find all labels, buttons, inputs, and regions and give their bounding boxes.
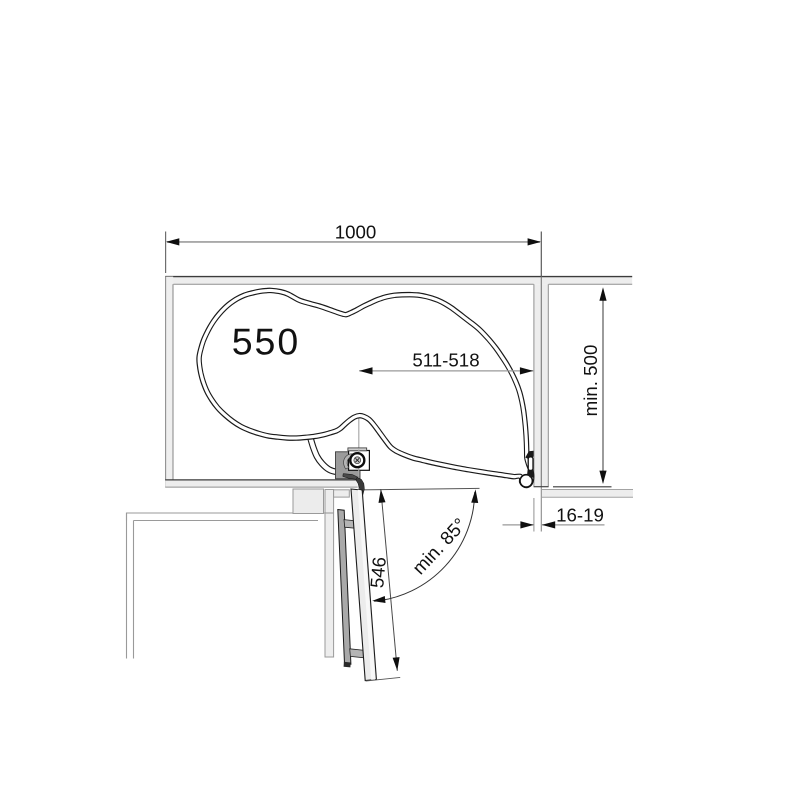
svg-text:16-19: 16-19 <box>556 504 604 525</box>
svg-text:550: 550 <box>232 321 301 363</box>
svg-text:546: 546 <box>366 556 390 589</box>
svg-text:1000: 1000 <box>335 221 377 242</box>
svg-text:min. 500: min. 500 <box>580 345 601 417</box>
svg-text:511-518: 511-518 <box>412 349 479 370</box>
